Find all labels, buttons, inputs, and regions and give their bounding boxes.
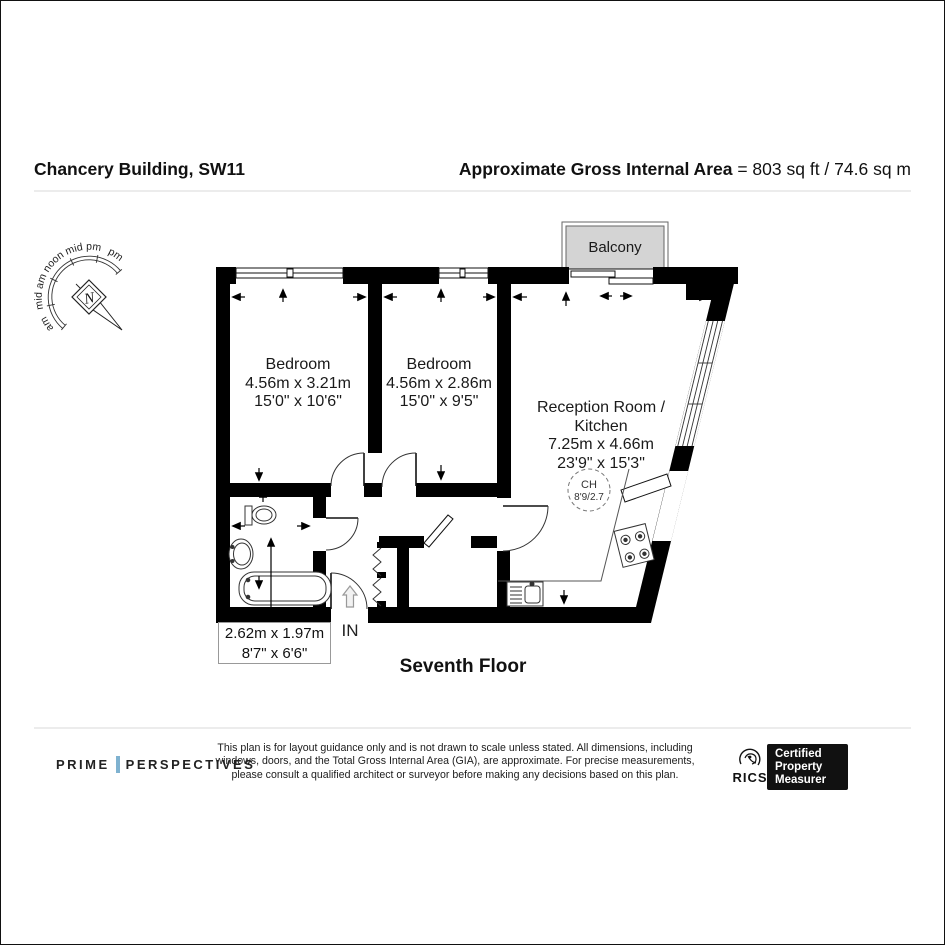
floorplan-page: Chancery Building, SW11 Approximate Gros… xyxy=(0,0,945,945)
badge-line: Measurer xyxy=(775,774,848,787)
badge-line: Property xyxy=(775,761,848,774)
bedroom-1-label: Bedroom 4.56m x 3.21m 15'0" x 10'6" xyxy=(245,356,351,412)
room-dims-imperial: 15'0" x 9'5" xyxy=(386,393,492,412)
ceiling-height-label: CH xyxy=(581,479,597,491)
room-name-2: Kitchen xyxy=(537,418,665,437)
brand-prime: PRIME xyxy=(56,757,110,772)
rics-logo-icon xyxy=(740,749,760,765)
bedroom-2-label: Bedroom 4.56m x 2.86m 15'0" x 9'5" xyxy=(386,356,492,412)
footer-divider xyxy=(34,727,911,729)
certified-property-measurer-badge: Certified Property Measurer xyxy=(767,744,848,790)
svg-text:mid am: mid am xyxy=(33,272,50,311)
compass-rose: N am mid am noon mid pm pm xyxy=(33,241,126,334)
ceiling-height-value: 8'9/2.7 xyxy=(574,492,604,503)
kitchen-sink xyxy=(507,582,543,606)
disclaimer-line: windows, doors, and the Total Gross Inte… xyxy=(215,755,694,768)
room-dims-metric: 4.56m x 3.21m xyxy=(245,375,351,394)
bathroom-dims-imperial: 8'7" x 6'6" xyxy=(219,644,330,664)
toilet xyxy=(245,506,276,525)
brand-divider-bar xyxy=(116,756,120,773)
room-name: Bedroom xyxy=(245,356,351,375)
reception-kitchen-label: Reception Room / Kitchen 7.25m x 4.66m 2… xyxy=(537,399,665,473)
interior-walls xyxy=(230,284,511,607)
balcony-sliding-door xyxy=(569,269,653,284)
balcony-label: Balcony xyxy=(588,239,641,256)
room-dims-imperial: 23'9" x 15'3" xyxy=(537,455,665,474)
disclaimer-text: This plan is for layout guidance only an… xyxy=(215,742,694,782)
compass-label-mid-am: mid am xyxy=(33,272,50,311)
bathroom-dims-metric: 2.62m x 1.97m xyxy=(219,624,330,644)
kitchen-hob xyxy=(614,524,654,568)
rics-wordmark: RICS xyxy=(732,770,767,785)
disclaimer-line: please consult a qualified architect or … xyxy=(215,769,694,782)
badge-line: Certified xyxy=(775,748,848,761)
disclaimer-line: This plan is for layout guidance only an… xyxy=(215,742,694,755)
room-dims-metric: 4.56m x 2.86m xyxy=(386,375,492,394)
room-dims-metric: 7.25m x 4.66m xyxy=(537,436,665,455)
compass-label-mid-pm: mid pm xyxy=(64,241,103,258)
floorplan-drawing: N am mid am noon mid pm pm xyxy=(1,1,944,944)
bathroom-dimension-box: 2.62m x 1.97m 8'7" x 6'6" xyxy=(218,622,331,664)
room-name: Reception Room / xyxy=(537,399,665,418)
floor-label: Seventh Floor xyxy=(400,656,527,678)
entrance-label: IN xyxy=(342,621,359,641)
entrance-arrow-icon xyxy=(343,586,357,607)
room-name: Bedroom xyxy=(386,356,492,375)
svg-text:mid pm: mid pm xyxy=(64,241,103,258)
reception-window xyxy=(676,321,725,446)
room-dims-imperial: 15'0" x 10'6" xyxy=(245,393,351,412)
basin xyxy=(229,539,253,569)
bathtub xyxy=(239,572,331,605)
